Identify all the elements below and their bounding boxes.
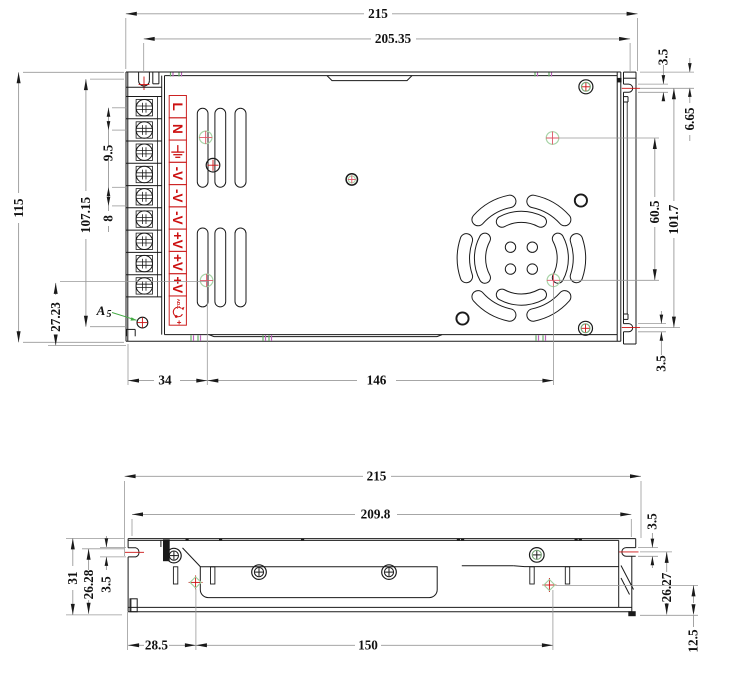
svg-text:-V: -V xyxy=(170,211,185,225)
svg-text:6.65: 6.65 xyxy=(682,107,697,130)
svg-text:3.5: 3.5 xyxy=(99,576,114,593)
svg-text:-V: -V xyxy=(170,167,185,181)
svg-text:26.27: 26.27 xyxy=(659,572,674,602)
svg-text:N: N xyxy=(170,124,185,134)
svg-text:8: 8 xyxy=(101,215,116,222)
svg-text:34: 34 xyxy=(158,373,172,388)
svg-text:+V: +V xyxy=(170,254,185,271)
svg-text:28.5: 28.5 xyxy=(145,637,168,652)
svg-text:150: 150 xyxy=(358,637,378,652)
svg-text:60.5: 60.5 xyxy=(647,200,662,223)
svg-text:215: 215 xyxy=(367,468,387,483)
svg-text:115: 115 xyxy=(11,198,26,217)
svg-text:3.5: 3.5 xyxy=(645,513,660,530)
svg-text:215: 215 xyxy=(368,6,388,21)
svg-text:31: 31 xyxy=(65,571,80,584)
svg-text:146: 146 xyxy=(367,373,387,388)
svg-text:27.23: 27.23 xyxy=(48,302,63,332)
svg-text:3.5: 3.5 xyxy=(654,355,669,372)
svg-text:12.5: 12.5 xyxy=(686,629,701,652)
svg-text:A: A xyxy=(96,303,106,318)
svg-text:205.35: 205.35 xyxy=(375,31,412,46)
svg-text:107.15: 107.15 xyxy=(78,196,93,233)
svg-text:+V: +V xyxy=(170,232,185,249)
svg-text:5: 5 xyxy=(107,309,112,320)
svg-text:ADJ.: ADJ. xyxy=(176,299,181,309)
svg-text:L: L xyxy=(170,102,185,110)
svg-text:-V: -V xyxy=(170,189,185,203)
svg-text:3.5: 3.5 xyxy=(656,48,671,65)
svg-text:26.28: 26.28 xyxy=(81,569,96,599)
svg-text:9.5: 9.5 xyxy=(101,144,116,161)
svg-text:209.8: 209.8 xyxy=(361,506,391,521)
svg-text:+V: +V xyxy=(170,276,185,293)
svg-text:101.7: 101.7 xyxy=(666,204,681,234)
